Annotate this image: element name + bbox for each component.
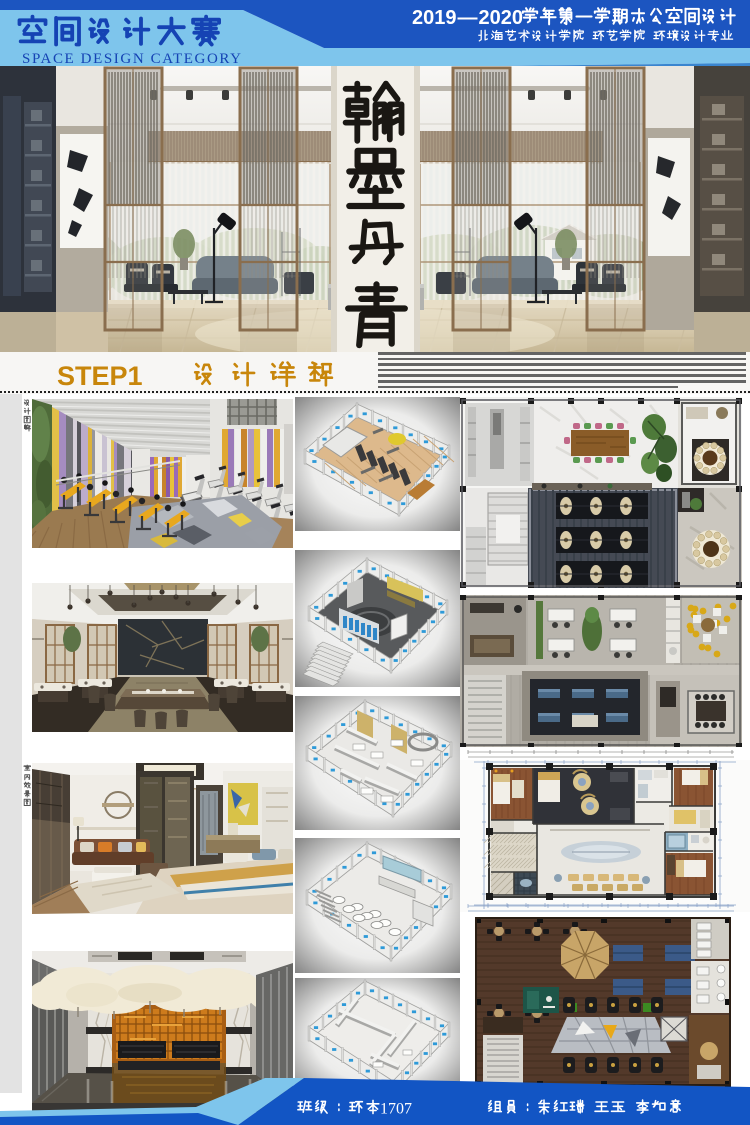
svg-text:2019—2020: 2019—2020 <box>412 7 523 29</box>
svg-text:STEP1: STEP1 <box>57 361 143 391</box>
svg-text:1707: 1707 <box>380 1101 412 1118</box>
svg-text:SPACE DESIGN CATEGORY: SPACE DESIGN CATEGORY <box>22 51 243 67</box>
